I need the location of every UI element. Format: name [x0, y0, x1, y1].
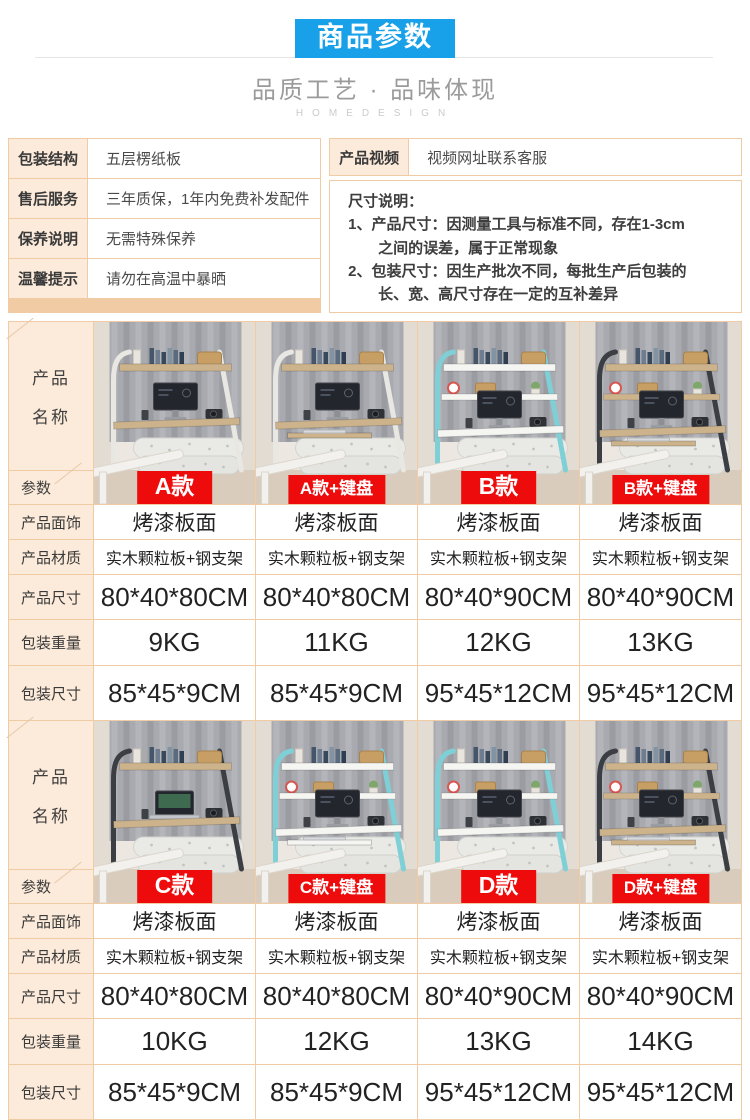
product-badge: C款: [137, 870, 213, 903]
product-name-label: 产品 名称: [9, 322, 93, 470]
size-value: 80*40*80CM: [256, 575, 417, 619]
section-cd: 产品 名称 参数 C款 C款+键盘 D款 D款+键盘 产品面饰: [8, 720, 742, 1120]
material-value: 实木颗粒板+钢支架: [256, 939, 417, 973]
info-label: 包装结构: [9, 139, 87, 178]
product-photo: B款: [418, 322, 579, 504]
product-badge: D款+键盘: [612, 874, 709, 903]
size-note-line: 2、包装尺寸：因生产批次不同，每批生产后包装的: [348, 260, 727, 283]
pack-value: 95*45*12CM: [580, 1065, 741, 1119]
product-badge: B款: [461, 471, 537, 504]
pack-value: 95*45*12CM: [418, 666, 579, 720]
page-header: 商品参数 品质工艺 · 品味体现 HOMEDESIGN: [0, 0, 750, 134]
product-badge: D款: [461, 870, 537, 903]
info-value: 三年质保，1年内免费补发配件: [88, 179, 320, 218]
info-label: 保养说明: [9, 219, 87, 258]
size-value: 80*40*80CM: [94, 575, 255, 619]
weight-value: 11KG: [256, 620, 417, 665]
row-label: 产品材质: [9, 540, 93, 574]
row-label: 包装重量: [9, 620, 93, 665]
video-row: 产品视频 视频网址联系客服: [329, 138, 742, 176]
finish-value: 烤漆板面: [256, 505, 417, 539]
page-root: 商品参数 品质工艺 · 品味体现 HOMEDESIGN 包装结构 五层楞纸板 售…: [0, 0, 750, 1104]
material-value: 实木颗粒板+钢支架: [94, 939, 255, 973]
section-ab: 产品 名称 参数 A款 A款+键盘 B款 B款+键盘 产品面饰: [8, 321, 742, 721]
weight-value: 10KG: [94, 1019, 255, 1064]
product-photo: A款: [94, 322, 255, 504]
video-label: 产品视频: [330, 139, 408, 175]
finish-value: 烤漆板面: [94, 904, 255, 938]
product-photo: A款+键盘: [256, 322, 417, 504]
info-label: 售后服务: [9, 179, 87, 218]
page-title: 商品参数: [295, 19, 455, 58]
row-label: 产品尺寸: [9, 974, 93, 1018]
weight-value: 12KG: [256, 1019, 417, 1064]
info-label: 温馨提示: [9, 259, 87, 298]
finish-value: 烤漆板面: [94, 505, 255, 539]
finish-value: 烤漆板面: [418, 904, 579, 938]
row-label: 产品尺寸: [9, 575, 93, 619]
product-badge: A款+键盘: [288, 475, 385, 504]
material-value: 实木颗粒板+钢支架: [418, 939, 579, 973]
pack-value: 85*45*9CM: [94, 666, 255, 720]
size-value: 80*40*90CM: [580, 974, 741, 1018]
product-badge: C款+键盘: [288, 874, 385, 903]
name-label-cell: 产品 名称 参数: [9, 322, 93, 504]
pack-value: 85*45*9CM: [94, 1065, 255, 1119]
material-value: 实木颗粒板+钢支架: [256, 540, 417, 574]
weight-value: 13KG: [580, 620, 741, 665]
product-badge: B款+键盘: [612, 475, 709, 504]
finish-value: 烤漆板面: [580, 505, 741, 539]
row-label: 包装尺寸: [9, 666, 93, 720]
row-label: 产品面饰: [9, 505, 93, 539]
weight-value: 9KG: [94, 620, 255, 665]
video-value: 视频网址联系客服: [409, 139, 741, 175]
size-note-line: 1、产品尺寸：因测量工具与标准不同，存在1-3cm: [348, 213, 727, 236]
brand-text: HOMEDESIGN: [0, 108, 750, 119]
size-value: 80*40*80CM: [94, 974, 255, 1018]
row-label: 产品面饰: [9, 904, 93, 938]
info-area: 包装结构 五层楞纸板 售后服务 三年质保，1年内免费补发配件 保养说明 无需特殊…: [8, 138, 742, 313]
weight-value: 14KG: [580, 1019, 741, 1064]
size-value: 80*40*90CM: [418, 974, 579, 1018]
size-note-line: 长、宽、高尺寸存在一定的互补差异: [348, 283, 727, 306]
pack-value: 95*45*12CM: [418, 1065, 579, 1119]
product-photo: B款+键盘: [580, 322, 741, 504]
pack-value: 85*45*9CM: [256, 666, 417, 720]
row-label: 包装尺寸: [9, 1065, 93, 1119]
weight-value: 13KG: [418, 1019, 579, 1064]
product-photo: D款+键盘: [580, 721, 741, 903]
row-label: 产品材质: [9, 939, 93, 973]
param-table: 产品 名称 参数 A款 A款+键盘 B款 B款+键盘 产品面饰: [8, 321, 742, 1120]
size-note-title: 尺寸说明：: [348, 190, 727, 213]
material-value: 实木颗粒板+钢支架: [580, 540, 741, 574]
size-note: 尺寸说明： 1、产品尺寸：因测量工具与标准不同，存在1-3cm 之间的误差，属于…: [329, 180, 742, 313]
info-value: 五层楞纸板: [88, 139, 320, 178]
name-label-cell: 产品 名称 参数: [9, 721, 93, 903]
finish-value: 烤漆板面: [256, 904, 417, 938]
row-label: 包装重量: [9, 1019, 93, 1064]
product-photo: C款: [94, 721, 255, 903]
material-value: 实木颗粒板+钢支架: [418, 540, 579, 574]
info-table-right: 产品视频 视频网址联系客服 尺寸说明： 1、产品尺寸：因测量工具与标准不同，存在…: [329, 138, 742, 313]
info-value: 请勿在高温中暴晒: [88, 259, 320, 298]
product-badge: A款: [137, 471, 213, 504]
material-value: 实木颗粒板+钢支架: [580, 939, 741, 973]
finish-value: 烤漆板面: [418, 505, 579, 539]
info-table-left: 包装结构 五层楞纸板 售后服务 三年质保，1年内免费补发配件 保养说明 无需特殊…: [8, 138, 321, 313]
size-note-line: 之间的误差，属于正常现象: [348, 237, 727, 260]
tagline: 品质工艺 · 品味体现: [0, 70, 750, 105]
size-value: 80*40*90CM: [580, 575, 741, 619]
param-label: 参数: [9, 869, 93, 903]
info-value: 无需特殊保养: [88, 219, 320, 258]
weight-value: 12KG: [418, 620, 579, 665]
pack-value: 85*45*9CM: [256, 1065, 417, 1119]
param-label: 参数: [9, 470, 93, 504]
product-name-label: 产品 名称: [9, 721, 93, 869]
size-value: 80*40*80CM: [256, 974, 417, 1018]
size-value: 80*40*90CM: [418, 575, 579, 619]
finish-value: 烤漆板面: [580, 904, 741, 938]
material-value: 实木颗粒板+钢支架: [94, 540, 255, 574]
pack-value: 95*45*12CM: [580, 666, 741, 720]
product-photo: D款: [418, 721, 579, 903]
product-photo: C款+键盘: [256, 721, 417, 903]
